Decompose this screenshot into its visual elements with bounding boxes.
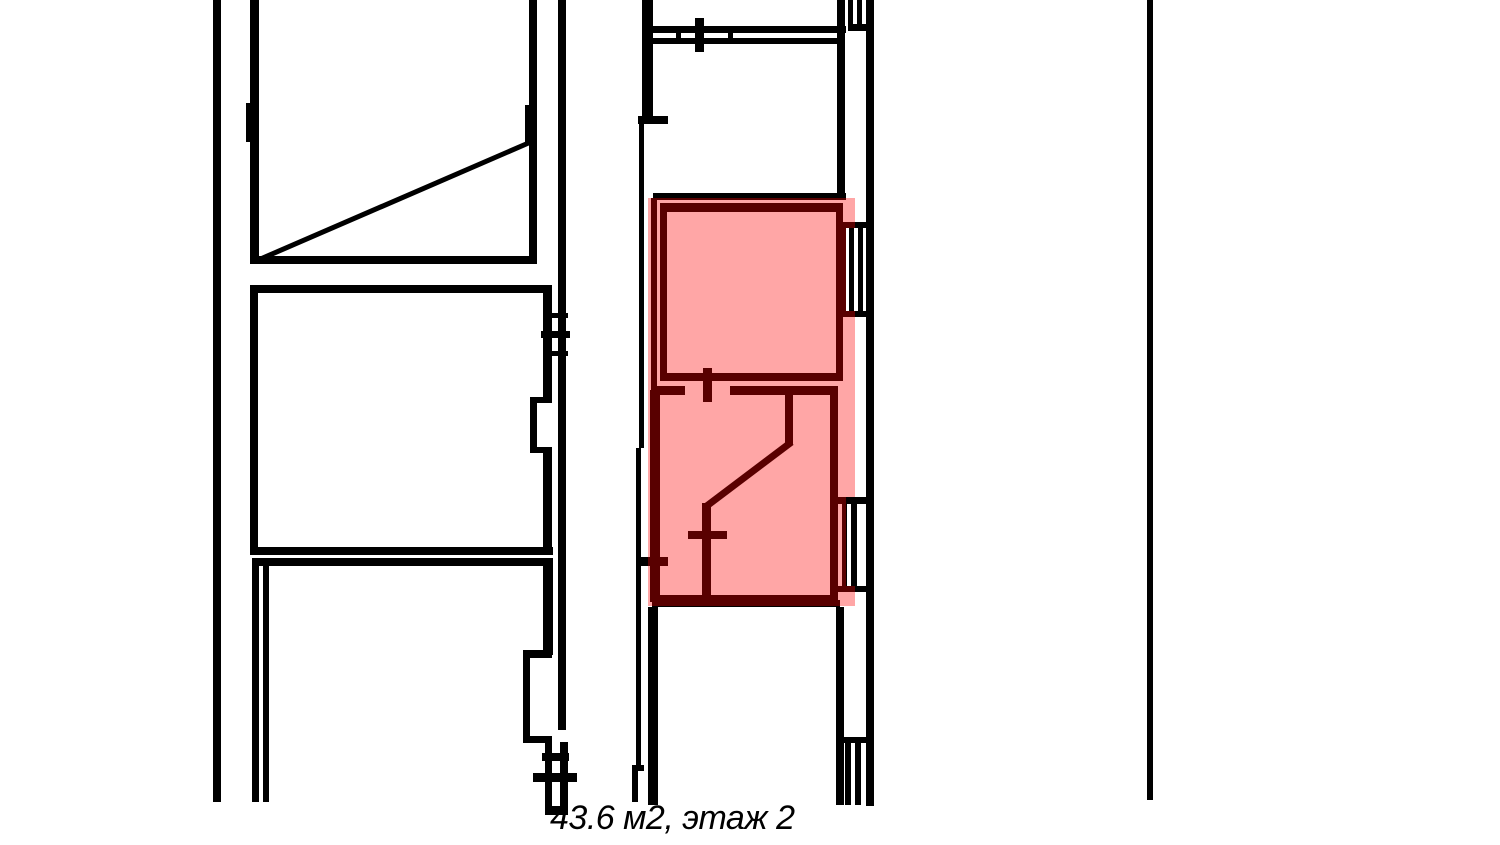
- window-line: [543, 351, 568, 356]
- wall-line: [639, 124, 644, 448]
- wall-line: [250, 285, 550, 293]
- wall-line: [648, 607, 658, 805]
- window-line: [851, 497, 857, 592]
- wall-line: [250, 285, 258, 555]
- area-floor-caption: 43.6 м2, этаж 2: [550, 799, 795, 838]
- selected-apartment-highlight-patch: [846, 311, 855, 497]
- wall-line: [523, 650, 530, 742]
- wall-line: [252, 558, 553, 566]
- stair-line: [857, 0, 862, 25]
- wall-line: [1147, 0, 1153, 800]
- wall-line: [543, 450, 552, 555]
- door-tick: [695, 18, 704, 52]
- window-line: [849, 222, 854, 317]
- stair-line: [836, 737, 868, 743]
- wall-line: [213, 0, 221, 802]
- window-line: [858, 222, 863, 317]
- selected-apartment-highlight[interactable]: [648, 198, 846, 606]
- wall-line: [636, 448, 641, 770]
- wall-line: [642, 0, 653, 121]
- shaft-line: [533, 773, 577, 782]
- wall-line: [252, 558, 259, 802]
- stair-line: [845, 743, 851, 805]
- door-tick: [638, 116, 668, 124]
- diagonal-wall-line: [256, 139, 532, 262]
- wall-line: [530, 397, 537, 453]
- wall-line: [836, 607, 844, 805]
- wall-line: [653, 26, 846, 33]
- wall-line: [837, 0, 845, 38]
- window-line: [541, 331, 570, 338]
- wall-line: [837, 38, 845, 198]
- stair-line: [848, 0, 853, 25]
- wall-line: [866, 0, 874, 806]
- wall-line: [250, 547, 553, 555]
- floorplan-viewer: 43.6 м2, этаж 2: [0, 0, 1500, 845]
- door-tick: [728, 26, 733, 44]
- door-tick: [676, 26, 681, 44]
- wall-line: [525, 105, 537, 143]
- wall-line: [246, 103, 259, 142]
- stair-line: [848, 24, 866, 31]
- wall-line: [543, 285, 552, 400]
- wall-line: [558, 0, 566, 730]
- selected-apartment-highlight-patch: [846, 586, 855, 606]
- selected-apartment-highlight-patch: [846, 198, 855, 228]
- shaft-line: [542, 753, 569, 761]
- wall-line: [632, 769, 638, 802]
- wall-line: [653, 38, 840, 44]
- wall-line: [263, 566, 269, 802]
- wall-line: [543, 558, 553, 655]
- wall-line: [250, 256, 537, 264]
- stair-line: [855, 743, 861, 805]
- window-line: [543, 313, 568, 318]
